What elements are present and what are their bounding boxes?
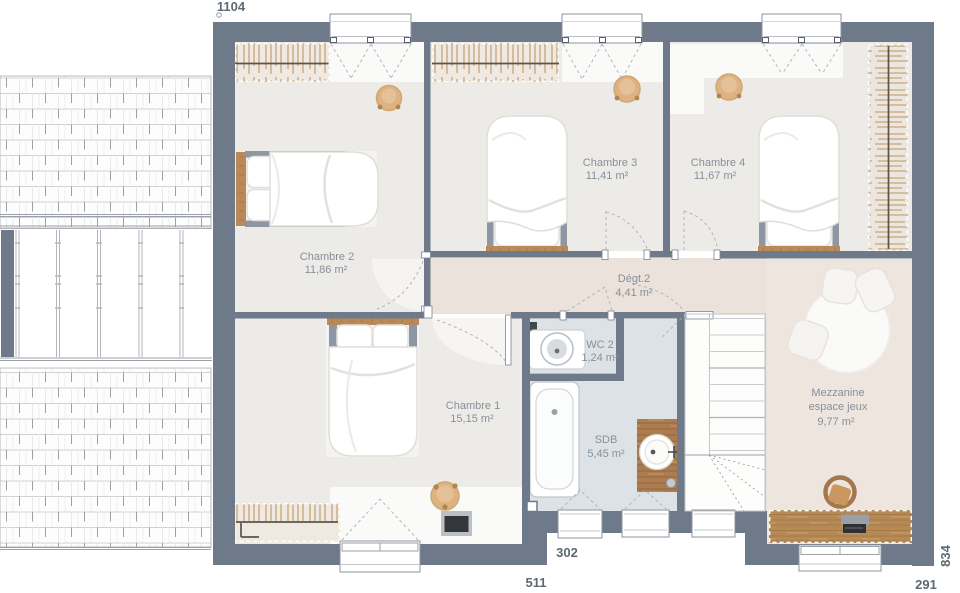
svg-text:9,77 m²: 9,77 m² — [817, 416, 855, 428]
svg-text:1,24 m²: 1,24 m² — [581, 352, 619, 364]
svg-text:302: 302 — [556, 545, 578, 560]
svg-text:WC 2: WC 2 — [586, 339, 614, 351]
svg-text:11,67 m²: 11,67 m² — [694, 170, 737, 182]
svg-text:5,45 m²: 5,45 m² — [587, 448, 625, 460]
svg-text:15,15 m²: 15,15 m² — [450, 413, 494, 425]
svg-text:Chambre 4: Chambre 4 — [691, 157, 745, 169]
svg-text:Mezzanine: Mezzanine — [811, 387, 864, 399]
svg-text:4,41 m²: 4,41 m² — [615, 287, 653, 299]
svg-text:SDB: SDB — [595, 434, 618, 446]
svg-text:Dégt.2: Dégt.2 — [618, 273, 650, 285]
svg-text:Chambre 2: Chambre 2 — [300, 251, 354, 263]
svg-text:834: 834 — [938, 544, 953, 566]
svg-text:espace jeux: espace jeux — [809, 401, 868, 413]
svg-text:1104: 1104 — [217, 0, 246, 14]
svg-text:Chambre 1: Chambre 1 — [446, 400, 500, 412]
svg-text:11,41 m²: 11,41 m² — [586, 170, 629, 182]
svg-text:11,86 m²: 11,86 m² — [305, 264, 348, 276]
svg-text:511: 511 — [526, 575, 547, 590]
svg-text:Chambre 3: Chambre 3 — [583, 157, 637, 169]
svg-text:291: 291 — [915, 577, 937, 592]
